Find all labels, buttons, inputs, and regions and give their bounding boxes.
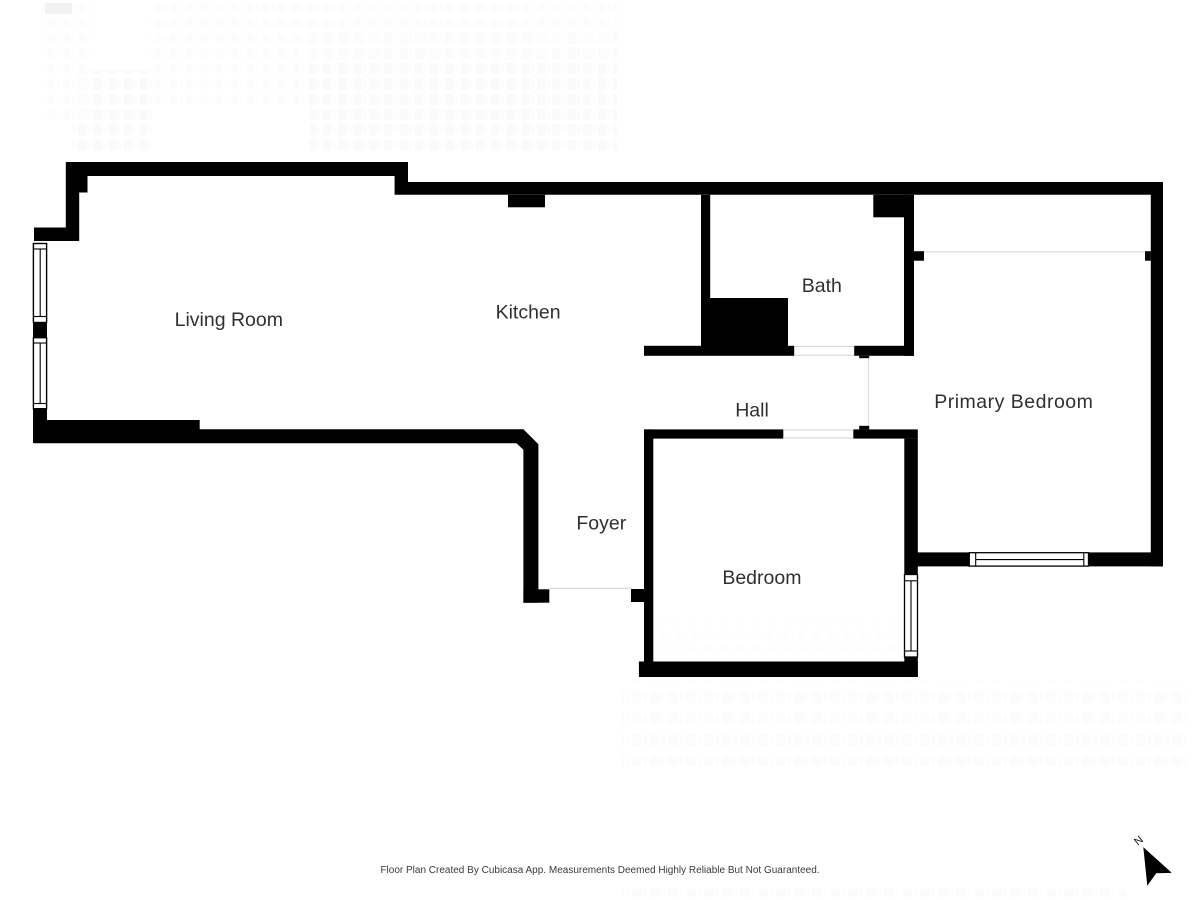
svg-text:Bedroom: Bedroom — [722, 567, 801, 589]
svg-text:N: N — [1132, 834, 1146, 848]
svg-text:Living Room: Living Room — [175, 309, 283, 331]
svg-text:Hall: Hall — [735, 399, 769, 421]
svg-text:Foyer: Foyer — [576, 512, 626, 534]
svg-text:Kitchen: Kitchen — [496, 301, 561, 323]
svg-text:Floor Plan Created By Cubicasa: Floor Plan Created By Cubicasa App. Meas… — [380, 865, 819, 876]
svg-text:Primary Bedroom: Primary Bedroom — [934, 391, 1093, 413]
svg-text:Bath: Bath — [802, 275, 842, 297]
